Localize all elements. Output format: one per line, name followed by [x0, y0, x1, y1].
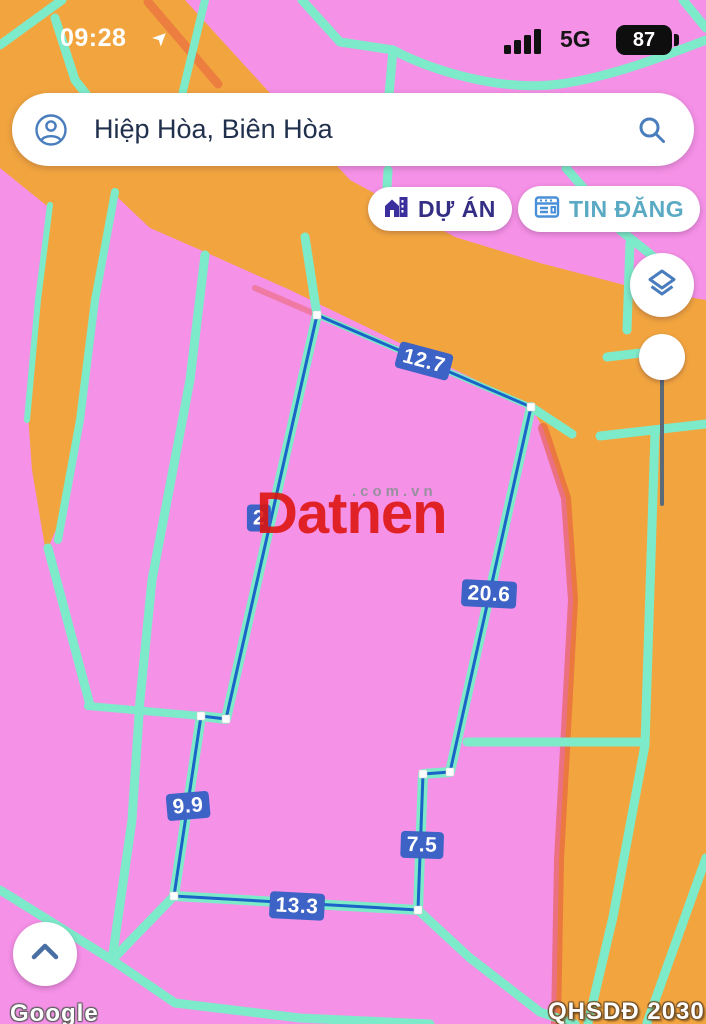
battery-nub	[674, 34, 679, 46]
tin-dang-button[interactable]: TIN ĐĂNG	[518, 186, 700, 232]
search-bar[interactable]: Hiệp Hòa, Biên Hòa	[12, 93, 694, 166]
map-layers-button[interactable]	[630, 253, 694, 317]
chevron-up-icon	[28, 941, 62, 968]
zoom-slider-handle[interactable]	[639, 334, 685, 380]
newspaper-icon	[534, 194, 560, 225]
du-an-button[interactable]: DỰ ÁN	[368, 187, 512, 231]
building-icon	[384, 194, 409, 224]
google-logo: Google	[10, 1000, 99, 1024]
du-an-label: DỰ ÁN	[418, 196, 496, 223]
signal-bars-icon	[504, 28, 546, 54]
search-input[interactable]: Hiệp Hòa, Biên Hòa	[94, 114, 636, 145]
zoom-slider-track[interactable]	[660, 378, 664, 506]
status-bar: 09:28 ➤ 5G 87	[0, 0, 706, 60]
measurement-label: 13.3	[269, 891, 325, 921]
measurement-label: 20.6	[461, 579, 517, 609]
account-icon[interactable]	[34, 113, 68, 147]
tin-dang-label: TIN ĐĂNG	[569, 196, 684, 223]
clock: 09:28	[60, 24, 126, 53]
layers-icon	[643, 264, 681, 307]
collapse-button[interactable]	[13, 922, 77, 986]
planning-layer-tag: QHSDĐ 2030	[548, 998, 705, 1024]
network-type: 5G	[560, 26, 591, 53]
location-arrow-icon: ➤	[147, 25, 175, 53]
measurement-label: 9.9	[166, 791, 211, 822]
search-icon[interactable]	[636, 114, 668, 146]
measurement-label: 2	[247, 504, 271, 531]
measurement-label: 7.5	[400, 831, 444, 860]
app-screen: 12.720.69.97.513.32 .com.vn Datnen Googl…	[0, 0, 706, 1024]
battery-icon: 87	[616, 25, 672, 55]
